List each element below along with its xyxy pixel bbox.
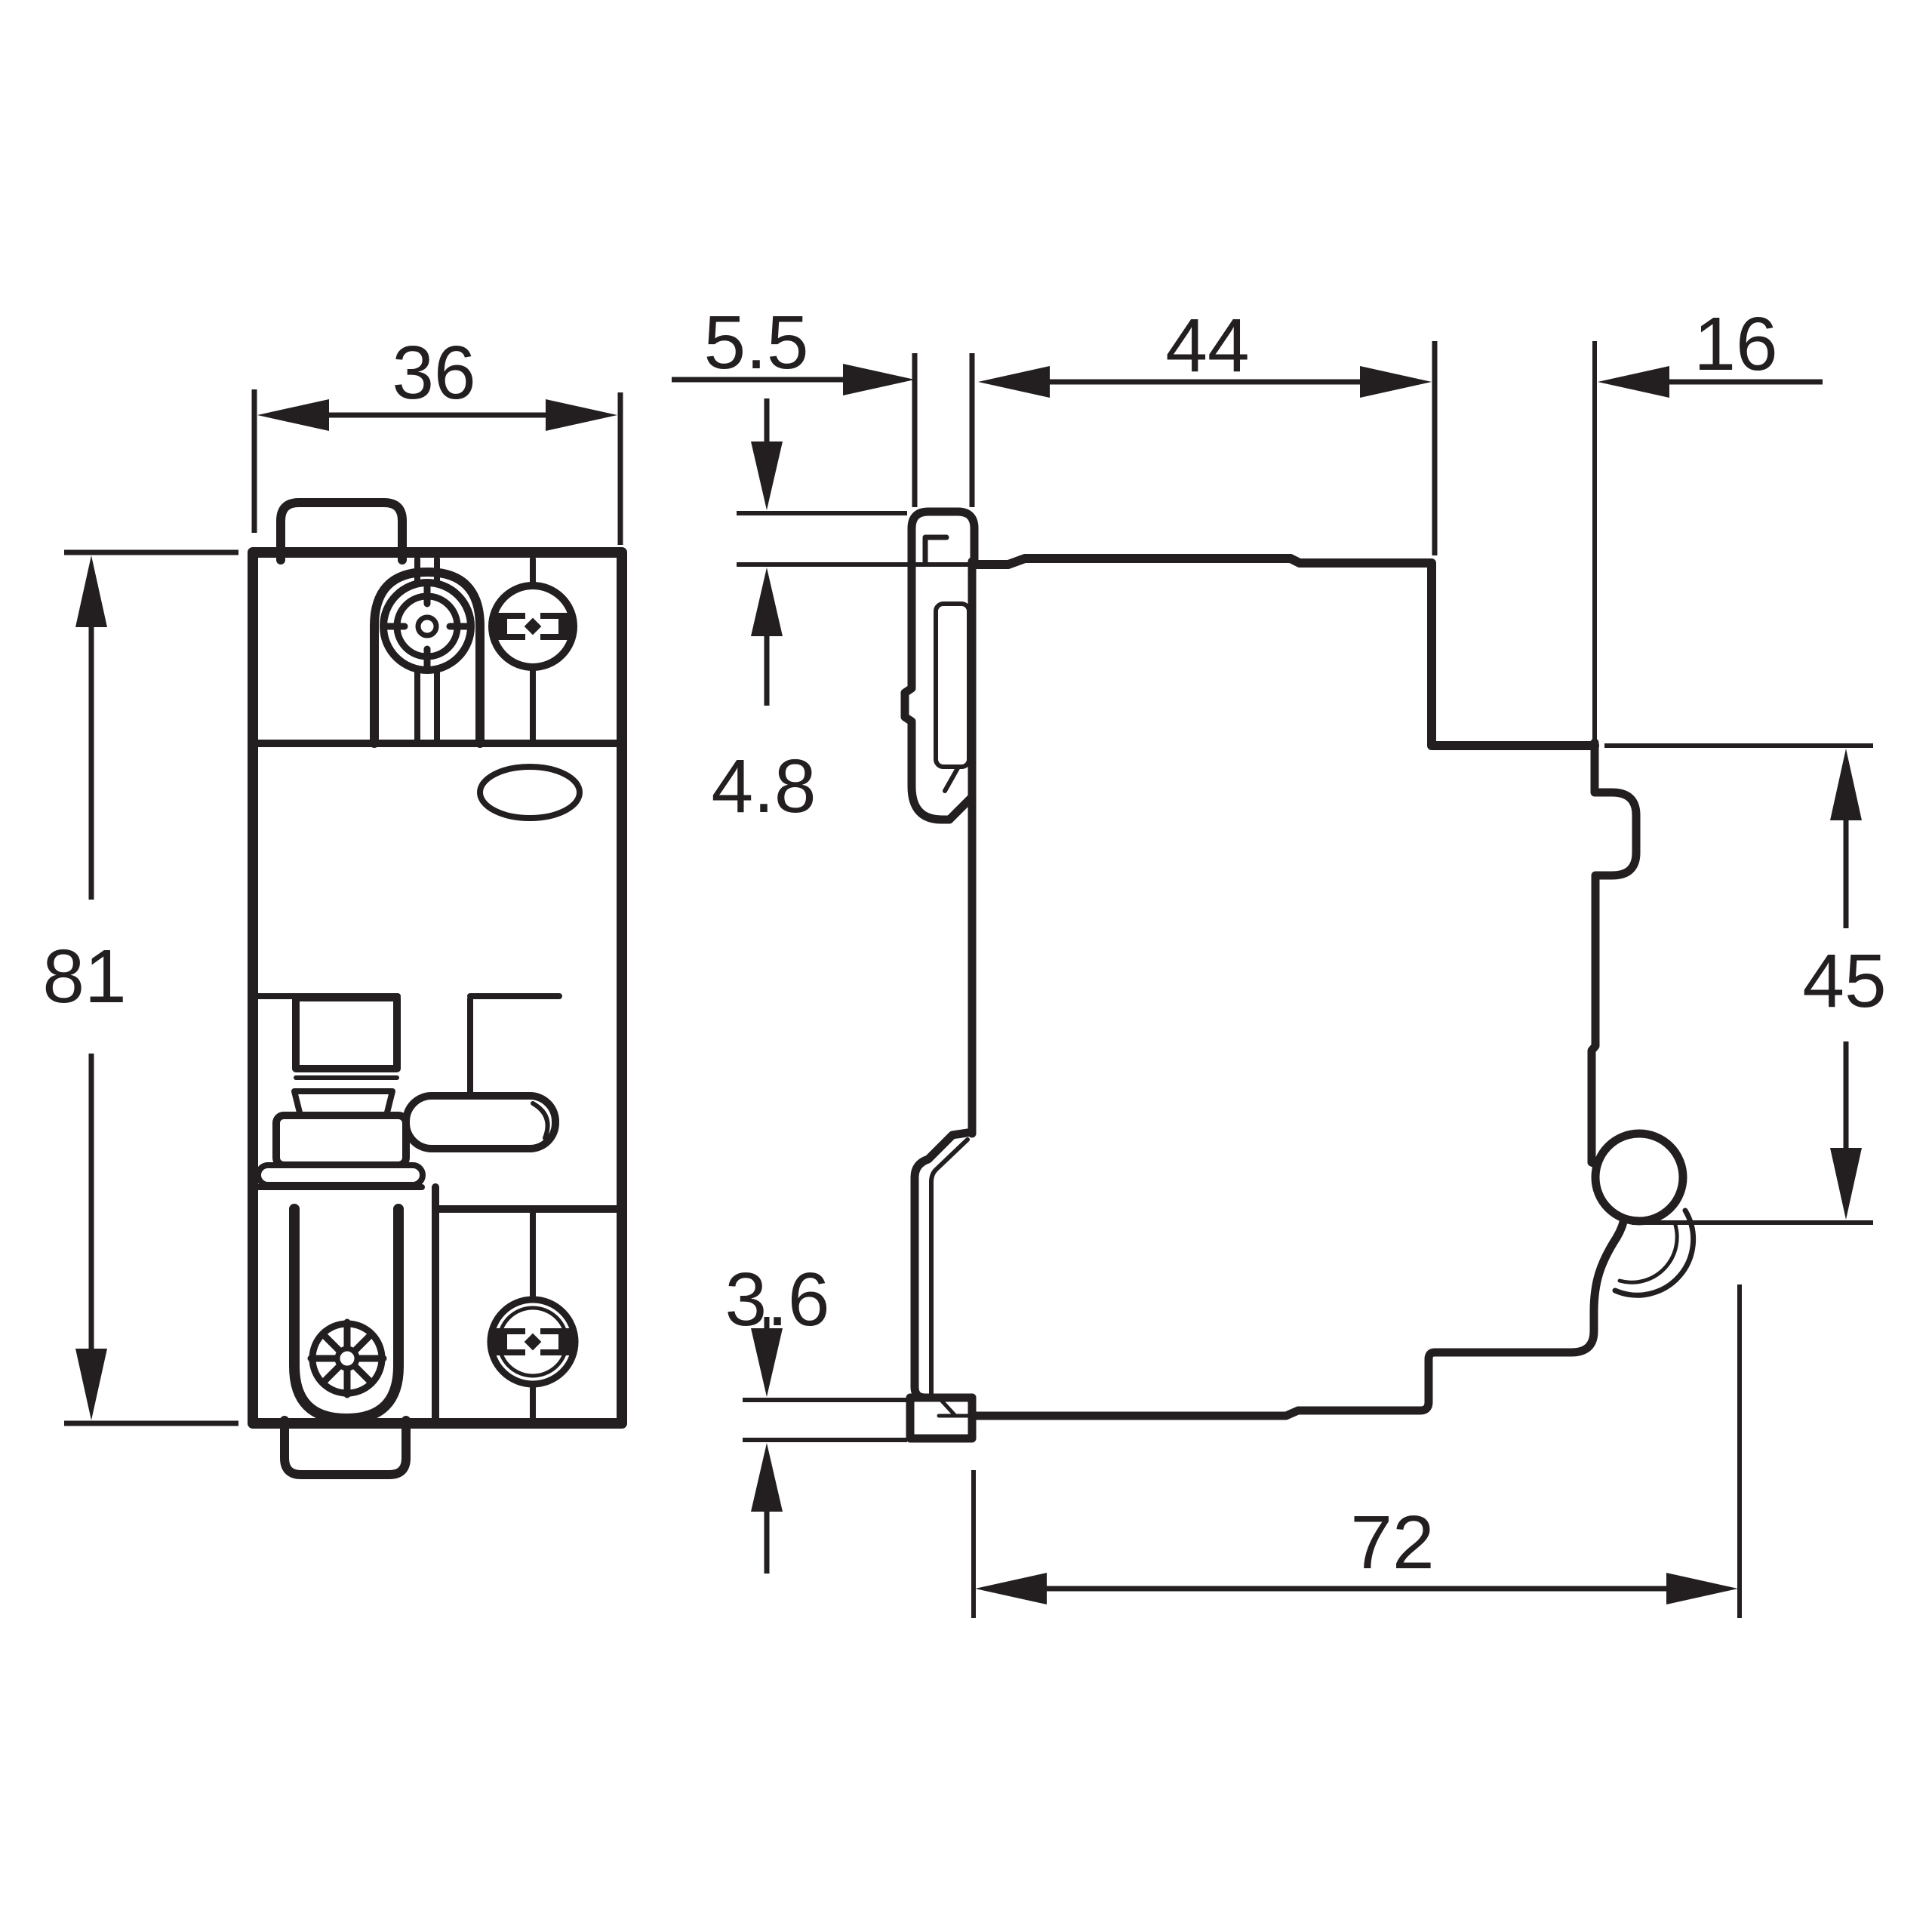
arrow-up-icon [1830, 749, 1862, 820]
toggle-pole-window [296, 998, 397, 1069]
dim-label-72: 72 [1350, 1500, 1434, 1585]
din-latch-body [915, 1132, 972, 1398]
screw-bottom-right-icon [491, 1300, 575, 1384]
din-latch-foot [910, 1398, 972, 1438]
toggle-catch-knob [1595, 1134, 1683, 1221]
dim-label-16: 16 [1694, 302, 1777, 386]
dim-label-45: 45 [1802, 939, 1886, 1023]
arrow-right-icon [546, 399, 617, 431]
dimension-front-depth: 16 [1595, 302, 1823, 740]
dimension-clip-lip: 5.5 [672, 300, 972, 507]
dim-label-4-8: 4.8 [711, 744, 816, 829]
front-view [253, 503, 622, 1475]
toggle-swing-arc-inner [1620, 1223, 1677, 1282]
arrow-left-icon [1598, 366, 1669, 398]
dimension-latch-travel: 3.6 [724, 1257, 907, 1574]
din-clip-upper [905, 512, 974, 820]
arrow-left-icon [975, 1573, 1047, 1604]
arrow-down-icon [1830, 1148, 1862, 1220]
dimension-total-depth: 72 [974, 1284, 1740, 1618]
din-clip-channel [936, 604, 969, 767]
screw-top-left-icon [383, 583, 471, 670]
dimension-drawing: 36 81 5.5 44 16 4.8 [0, 0, 1932, 1932]
side-top-profile [974, 558, 1595, 746]
arrow-right-icon [843, 364, 915, 395]
side-front-face [1592, 743, 1636, 1162]
arrow-down-icon [751, 441, 783, 510]
arrow-up-icon [751, 1443, 783, 1512]
dim-label-3-6: 3.6 [724, 1257, 829, 1342]
arrow-right-icon [1360, 366, 1432, 398]
arrow-up-icon [751, 568, 783, 636]
dimension-front-height: 81 [42, 552, 238, 1423]
dim-label-5-5: 5.5 [703, 300, 808, 385]
dimension-body-depth: 44 [978, 303, 1435, 555]
arrow-up-icon [75, 555, 107, 627]
dim-label-81: 81 [42, 934, 126, 1019]
dim-label-44: 44 [1165, 303, 1249, 388]
screw-top-right-icon [492, 586, 574, 667]
screw-bottom-left-icon [311, 1322, 383, 1395]
drawing-svg: 36 81 5.5 44 16 4.8 [0, 0, 1932, 1932]
toggle-lever-handle [276, 1115, 406, 1165]
side-view [905, 512, 1694, 1438]
arrow-down-icon [75, 1349, 107, 1420]
arrow-left-icon [978, 366, 1050, 398]
side-bottom-profile [975, 1162, 1626, 1416]
dimension-clip-tab-height: 4.8 [711, 398, 971, 829]
toggle-lever-base [258, 1165, 423, 1185]
din-latch-lower [910, 1132, 972, 1438]
dim-label-36: 36 [392, 331, 475, 415]
arrow-left-icon [257, 399, 329, 431]
arrow-right-icon [1666, 1573, 1738, 1604]
